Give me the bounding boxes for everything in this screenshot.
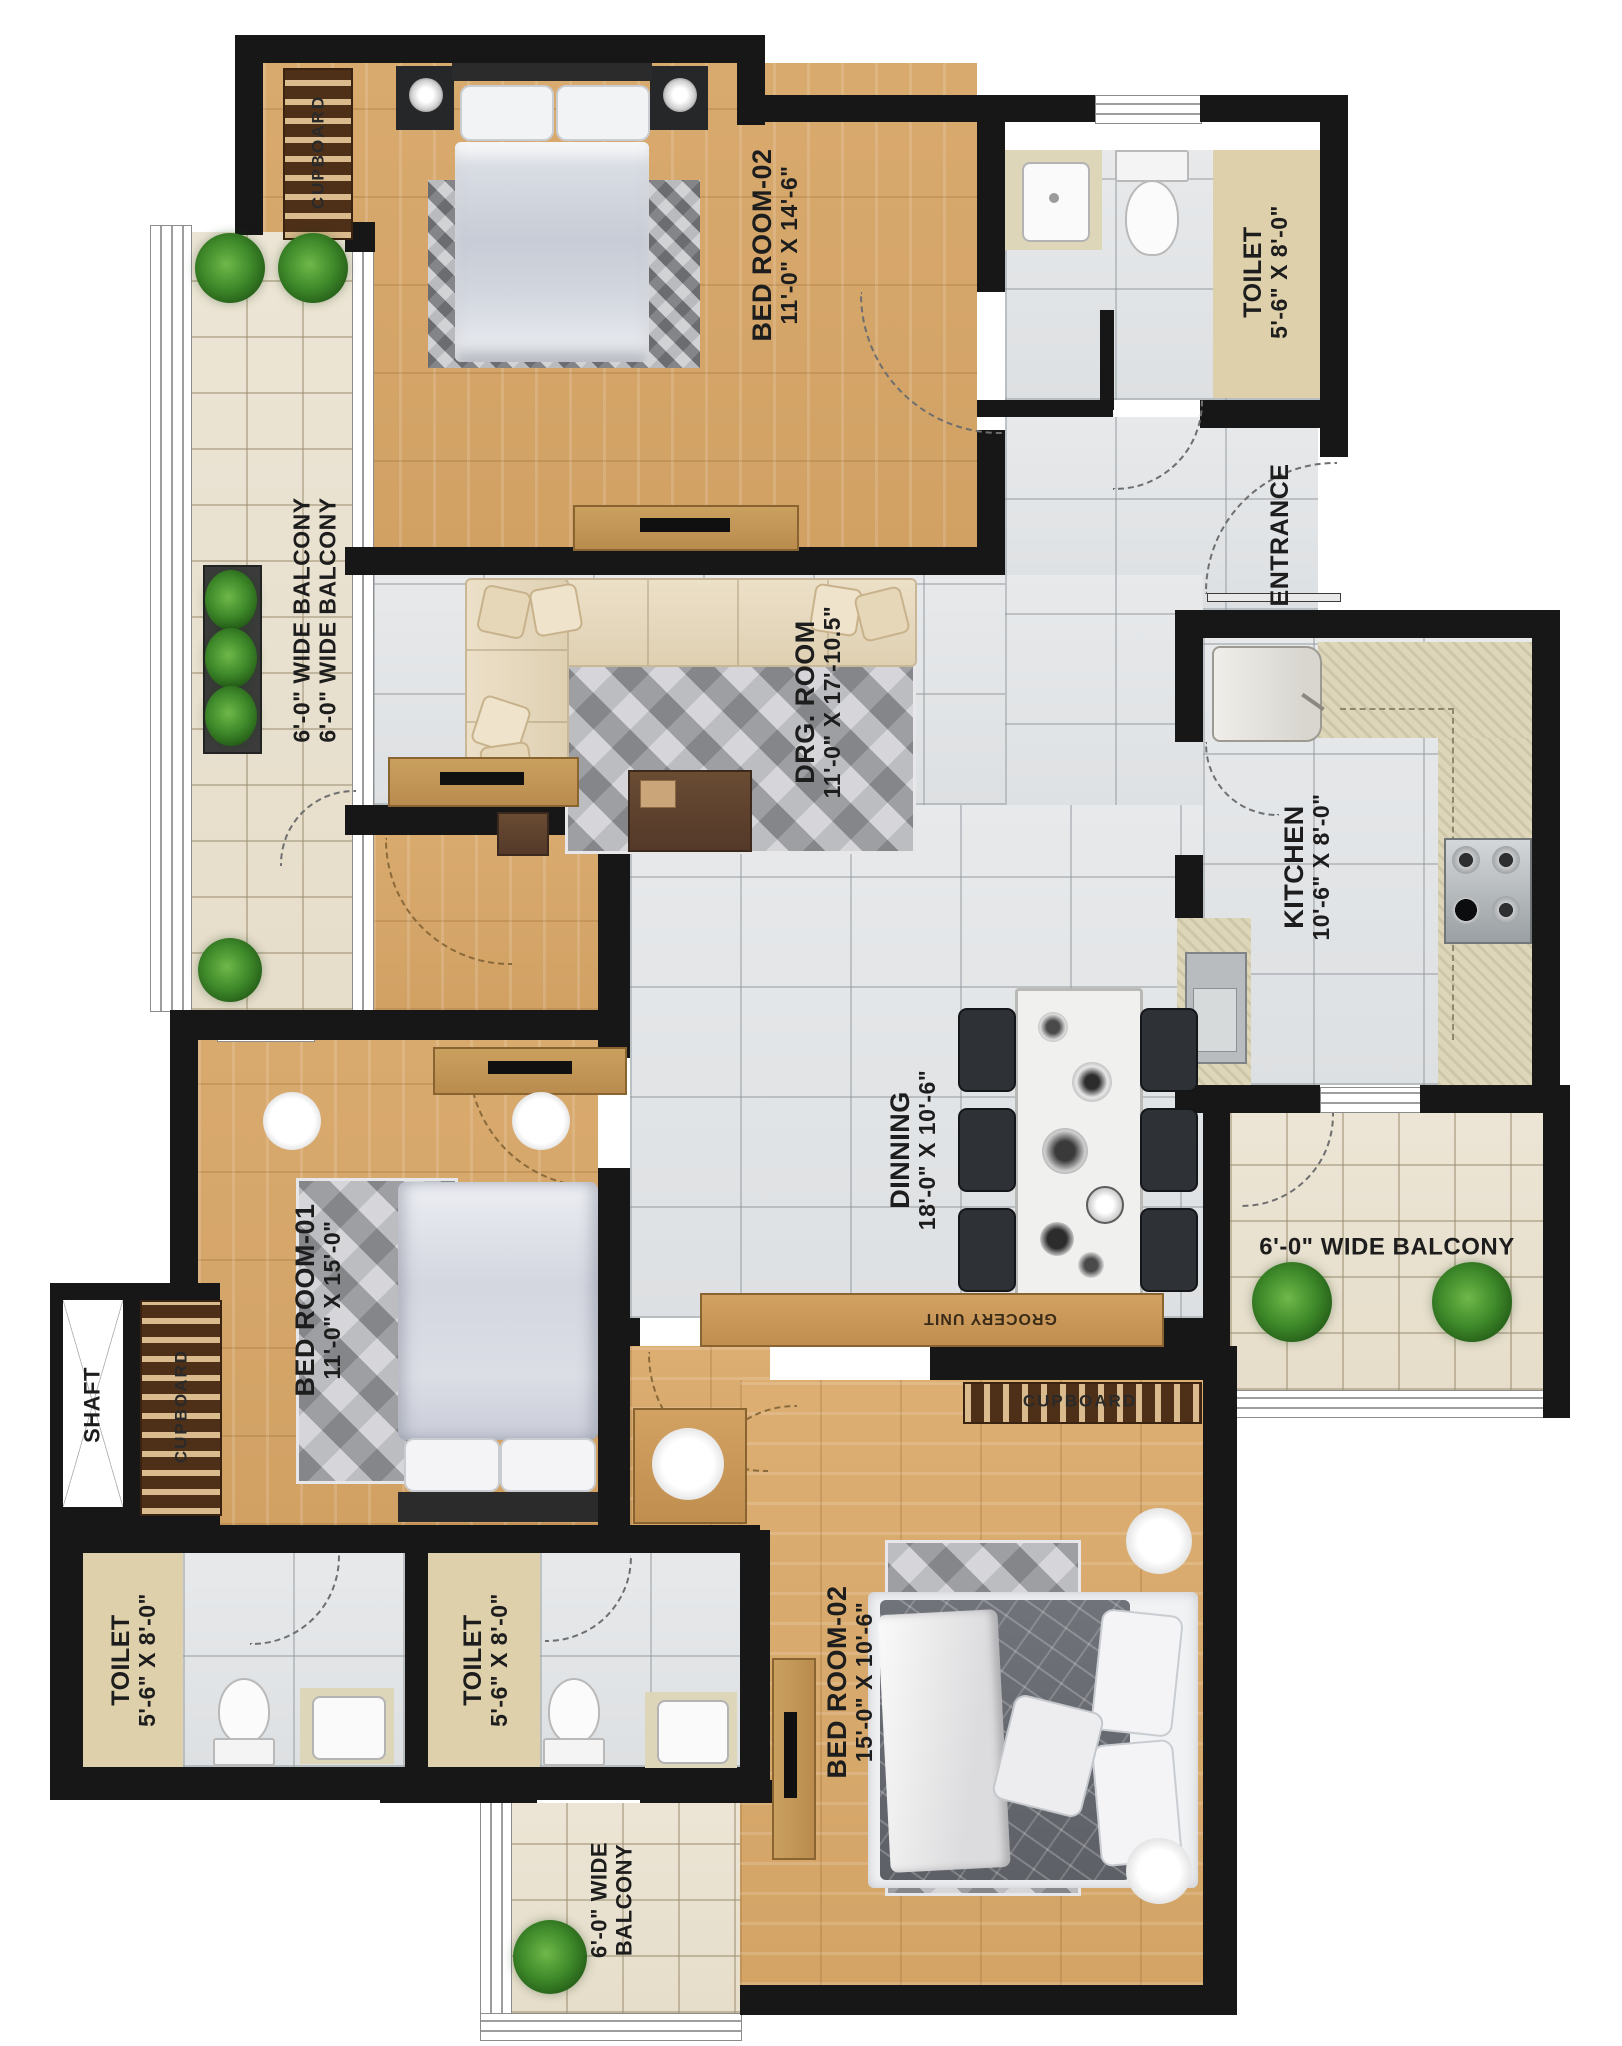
room-dims: 18'-0" X 10'-6" bbox=[915, 1070, 941, 1230]
toilet-top-tank bbox=[1115, 150, 1189, 182]
wall bbox=[1175, 610, 1560, 638]
wall bbox=[345, 547, 1005, 575]
wall bbox=[1532, 610, 1560, 1113]
room-name: TOILET bbox=[1239, 205, 1267, 339]
wall bbox=[1203, 1085, 1230, 1390]
stove-burner bbox=[1452, 896, 1480, 924]
room-dims: 10'-6" X 8'-0" bbox=[1309, 793, 1335, 940]
room-name: KITCHEN bbox=[1279, 793, 1309, 940]
wall bbox=[930, 1346, 1237, 1380]
dining-chair bbox=[958, 1108, 1016, 1192]
mid-tile-floor bbox=[1005, 575, 1203, 835]
toilet-two-tank bbox=[543, 1738, 605, 1766]
wall bbox=[1175, 1085, 1320, 1113]
round-table bbox=[1126, 1838, 1192, 1904]
round-stool bbox=[263, 1092, 321, 1150]
kitchen-counter-overhang bbox=[1340, 708, 1454, 1040]
dining-chair bbox=[1140, 1008, 1198, 1092]
room-dims: 11'-0" X 17'-10.5" bbox=[820, 606, 846, 799]
dining-chair bbox=[958, 1008, 1016, 1092]
wall bbox=[1320, 122, 1348, 457]
bedroom-bottom-label: BED ROOM-02 15'-0" X 10'-6" bbox=[822, 1585, 878, 1778]
bedroom-one-bed-pillow bbox=[404, 1438, 500, 1492]
plant-icon bbox=[195, 233, 265, 303]
room-name: TOILET bbox=[459, 1593, 487, 1727]
dining-plate bbox=[1078, 1252, 1104, 1278]
balcony-left-label: 6'-0" WIDE BALCONY 6'-0" WIDE BALCONY bbox=[289, 497, 341, 742]
dining-chair bbox=[1140, 1108, 1198, 1192]
wall bbox=[170, 1040, 198, 1285]
dining-plate bbox=[1086, 1186, 1124, 1224]
toilet-one-label: TOILET 5'-6" X 8'-0" bbox=[107, 1593, 161, 1727]
bed-top-headboard bbox=[452, 63, 652, 81]
bedroom-one-bed-pillow bbox=[500, 1438, 596, 1492]
wall bbox=[765, 95, 1095, 122]
wall bbox=[235, 35, 263, 235]
bedroom-bottom-pillow bbox=[1090, 1608, 1184, 1738]
plant-icon bbox=[205, 570, 257, 630]
dining-chair bbox=[1140, 1208, 1198, 1292]
room-dims: 5'-6" X 8'-0" bbox=[487, 1593, 513, 1727]
room-name: DINNING bbox=[885, 1070, 915, 1230]
bed-top-pillow bbox=[556, 85, 650, 141]
balcony-bottom-left-railing bbox=[480, 1800, 512, 2017]
balcony-text: 6'-0" WIDE bbox=[587, 1842, 612, 1958]
wall bbox=[380, 1780, 537, 1803]
coffee-table-decor bbox=[640, 780, 676, 808]
room-name: DRG. ROOM bbox=[790, 606, 820, 799]
bedroom-one-bed-headboard bbox=[398, 1492, 598, 1522]
tv-icon bbox=[640, 518, 730, 532]
toilet-two-sink bbox=[657, 1700, 729, 1764]
bedroom-one-label: BED ROOM-01 11'-0" X 15'-0" bbox=[290, 1203, 346, 1396]
wall bbox=[977, 430, 1005, 550]
bedroom-one-bed-duvet bbox=[398, 1182, 598, 1440]
side-table bbox=[497, 812, 549, 856]
lamp-icon bbox=[409, 78, 443, 112]
wall bbox=[1420, 1085, 1560, 1113]
lamp-icon bbox=[663, 78, 697, 112]
floor-plan: BED ROOM-02 11'-0" X 14'-6" CUPBOARD TOI… bbox=[0, 0, 1622, 2046]
wall bbox=[598, 1168, 630, 1525]
dining-chair bbox=[958, 1208, 1016, 1292]
wall bbox=[170, 1010, 630, 1040]
bedroom-bottom-blanket bbox=[877, 1609, 1010, 1873]
room-dims: 5'-6" X 8'-0" bbox=[135, 1593, 161, 1727]
plant-icon bbox=[198, 938, 262, 1002]
room-dims: 11'-0" X 14'-6" bbox=[777, 148, 803, 341]
plant-icon bbox=[205, 628, 257, 688]
wall bbox=[1203, 1380, 1237, 2015]
bedroom-top-cupboard-label: CUPBOARD bbox=[308, 95, 327, 209]
balcony-right-label: 6'-0" WIDE BALCONY bbox=[1259, 1235, 1514, 1262]
room-dims: 11'-0" X 15'-0" bbox=[320, 1203, 346, 1396]
stove-burner bbox=[1492, 896, 1520, 924]
balcony-text: 6'-0" WIDE BALCONY bbox=[289, 497, 315, 742]
wall bbox=[50, 1525, 760, 1553]
bedroom-top-label: BED ROOM-02 11'-0" X 14'-6" bbox=[747, 148, 803, 341]
bedroom-bottom-cupboard-label: CUPBOARD bbox=[1023, 1391, 1137, 1410]
round-stool bbox=[512, 1092, 570, 1150]
wall bbox=[640, 1780, 780, 1803]
room-name: BED ROOM-02 bbox=[822, 1585, 852, 1778]
kitchen-sink-basin bbox=[1193, 988, 1237, 1052]
tv-icon bbox=[488, 1061, 572, 1074]
wall bbox=[1100, 310, 1114, 410]
balcony-left-window-line bbox=[352, 232, 374, 1012]
plant-icon bbox=[205, 686, 257, 746]
bathroom-window bbox=[1095, 95, 1202, 124]
stove-burner bbox=[1492, 846, 1520, 874]
passage-round-basin bbox=[652, 1428, 724, 1500]
entrance-label: ENTRANCE bbox=[1266, 464, 1294, 607]
kitchen-label: KITCHEN 10'-6" X 8'-0" bbox=[1279, 793, 1335, 940]
wall bbox=[1175, 855, 1203, 918]
tv-icon bbox=[784, 1712, 797, 1798]
shaft-label: SHAFT bbox=[81, 1367, 106, 1443]
balcony-text: 6'-0" WIDE BALCONY bbox=[315, 497, 341, 742]
toilet-two-bowl bbox=[548, 1678, 600, 1744]
balcony-text: BALCONY bbox=[612, 1842, 637, 1958]
toilet-one-tank bbox=[213, 1738, 275, 1766]
wall bbox=[1200, 95, 1348, 122]
balcony-bottom-bottom-railing bbox=[480, 2013, 742, 2041]
dining-plate bbox=[1072, 1062, 1112, 1102]
wall bbox=[740, 1985, 1237, 2015]
wall bbox=[737, 35, 765, 125]
toilet-top-label: TOILET 5'-6" X 8'-0" bbox=[1239, 205, 1293, 339]
wall bbox=[1543, 1085, 1570, 1418]
room-name: TOILET bbox=[107, 1593, 135, 1727]
wall bbox=[235, 35, 765, 63]
balcony-bottom-label: 6'-0" WIDE BALCONY bbox=[587, 1842, 636, 1958]
tv-icon bbox=[440, 772, 524, 785]
sofa-pillow bbox=[528, 582, 584, 638]
wall bbox=[1200, 400, 1320, 428]
dining-plate bbox=[1040, 1222, 1074, 1256]
sofa-pillow bbox=[476, 584, 533, 641]
room-dims: 5'-6" X 8'-0" bbox=[1267, 205, 1293, 339]
plant-icon bbox=[1432, 1262, 1512, 1342]
room-name: BED ROOM-02 bbox=[747, 148, 777, 341]
bedroom-one-cupboard-label: CUPBOARD bbox=[171, 1349, 190, 1463]
balcony-left-railing bbox=[150, 225, 192, 1012]
plant-icon bbox=[1252, 1262, 1332, 1342]
stove-burner bbox=[1452, 846, 1480, 874]
dining-plate bbox=[1042, 1128, 1088, 1174]
kitchen-balcony-slider bbox=[1320, 1087, 1422, 1113]
round-table bbox=[1126, 1508, 1192, 1574]
wall bbox=[605, 1318, 640, 1346]
faucet-icon bbox=[1049, 193, 1059, 203]
wall bbox=[405, 1553, 430, 1767]
room-name: BED ROOM-01 bbox=[290, 1203, 320, 1396]
plant-icon bbox=[278, 233, 348, 303]
wall bbox=[977, 122, 1005, 292]
bed-top-duvet bbox=[455, 142, 649, 362]
wall bbox=[1175, 610, 1203, 742]
drg-room-label: DRG. ROOM 11'-0" X 17'-10.5" bbox=[790, 606, 846, 799]
grocery-unit-label: GROCERY UNIT bbox=[923, 1309, 1057, 1327]
balcony-right-bottom-railing bbox=[1230, 1390, 1545, 1418]
plant-icon bbox=[513, 1920, 587, 1994]
dining-plate bbox=[1038, 1012, 1068, 1042]
toilet-one-bowl bbox=[218, 1678, 270, 1744]
dining-label: DINNING 18'-0" X 10'-6" bbox=[885, 1070, 941, 1230]
wall bbox=[740, 1530, 770, 1800]
wall bbox=[50, 1553, 83, 1800]
room-dims: 15'-0" X 10'-6" bbox=[852, 1585, 878, 1778]
toilet-one-sink bbox=[312, 1696, 386, 1760]
toilet-two-label: TOILET 5'-6" X 8'-0" bbox=[459, 1593, 513, 1727]
bed-top-pillow bbox=[460, 85, 554, 141]
toilet-top-bowl bbox=[1125, 180, 1179, 256]
